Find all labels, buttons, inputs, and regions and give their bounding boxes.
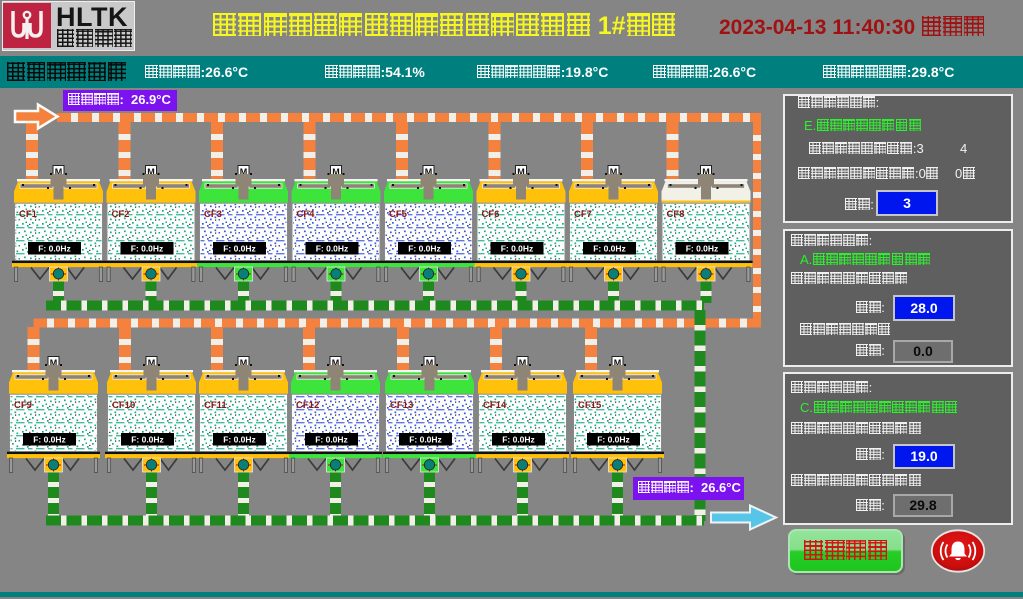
svg-text:CF10: CF10 (112, 400, 135, 411)
svg-text:F: 0.0Hz: F: 0.0Hz (223, 244, 256, 254)
svg-text:F: 0.0Hz: F: 0.0Hz (223, 435, 256, 445)
svg-text:F: 0.0Hz: F: 0.0Hz (131, 244, 164, 254)
svg-text:F: 0.0Hz: F: 0.0Hz (409, 435, 442, 445)
svg-text:CF1: CF1 (19, 209, 38, 220)
svg-text:CF2: CF2 (112, 209, 130, 220)
svg-text:F: 0.0Hz: F: 0.0Hz (502, 435, 535, 445)
svg-text:F: 0.0Hz: F: 0.0Hz (131, 435, 164, 445)
svg-text:F: 0.0Hz: F: 0.0Hz (686, 244, 719, 254)
svg-text:CF15: CF15 (578, 400, 602, 411)
svg-text:CF9: CF9 (14, 400, 32, 411)
svg-text:F: 0.0Hz: F: 0.0Hz (593, 244, 626, 254)
svg-text:F: 0.0Hz: F: 0.0Hz (408, 244, 441, 254)
svg-text:CF11: CF11 (204, 400, 227, 411)
svg-text:CF5: CF5 (389, 209, 408, 220)
svg-text:F: 0.0Hz: F: 0.0Hz (38, 244, 71, 254)
svg-text:CF13: CF13 (390, 400, 413, 411)
svg-text:CF8: CF8 (667, 209, 685, 220)
svg-text:CF6: CF6 (482, 209, 500, 220)
svg-text:F: 0.0Hz: F: 0.0Hz (315, 435, 348, 445)
svg-text:F: 0.0Hz: F: 0.0Hz (501, 244, 534, 254)
svg-text:CF7: CF7 (574, 209, 592, 220)
svg-text:CF4: CF4 (297, 209, 316, 220)
svg-text:CF3: CF3 (204, 209, 222, 220)
svg-text:CF12: CF12 (296, 400, 319, 411)
svg-text:F: 0.0Hz: F: 0.0Hz (597, 435, 630, 445)
svg-text:CF14: CF14 (483, 400, 507, 411)
svg-text:F: 0.0Hz: F: 0.0Hz (316, 244, 349, 254)
svg-text:F: 0.0Hz: F: 0.0Hz (33, 435, 66, 445)
